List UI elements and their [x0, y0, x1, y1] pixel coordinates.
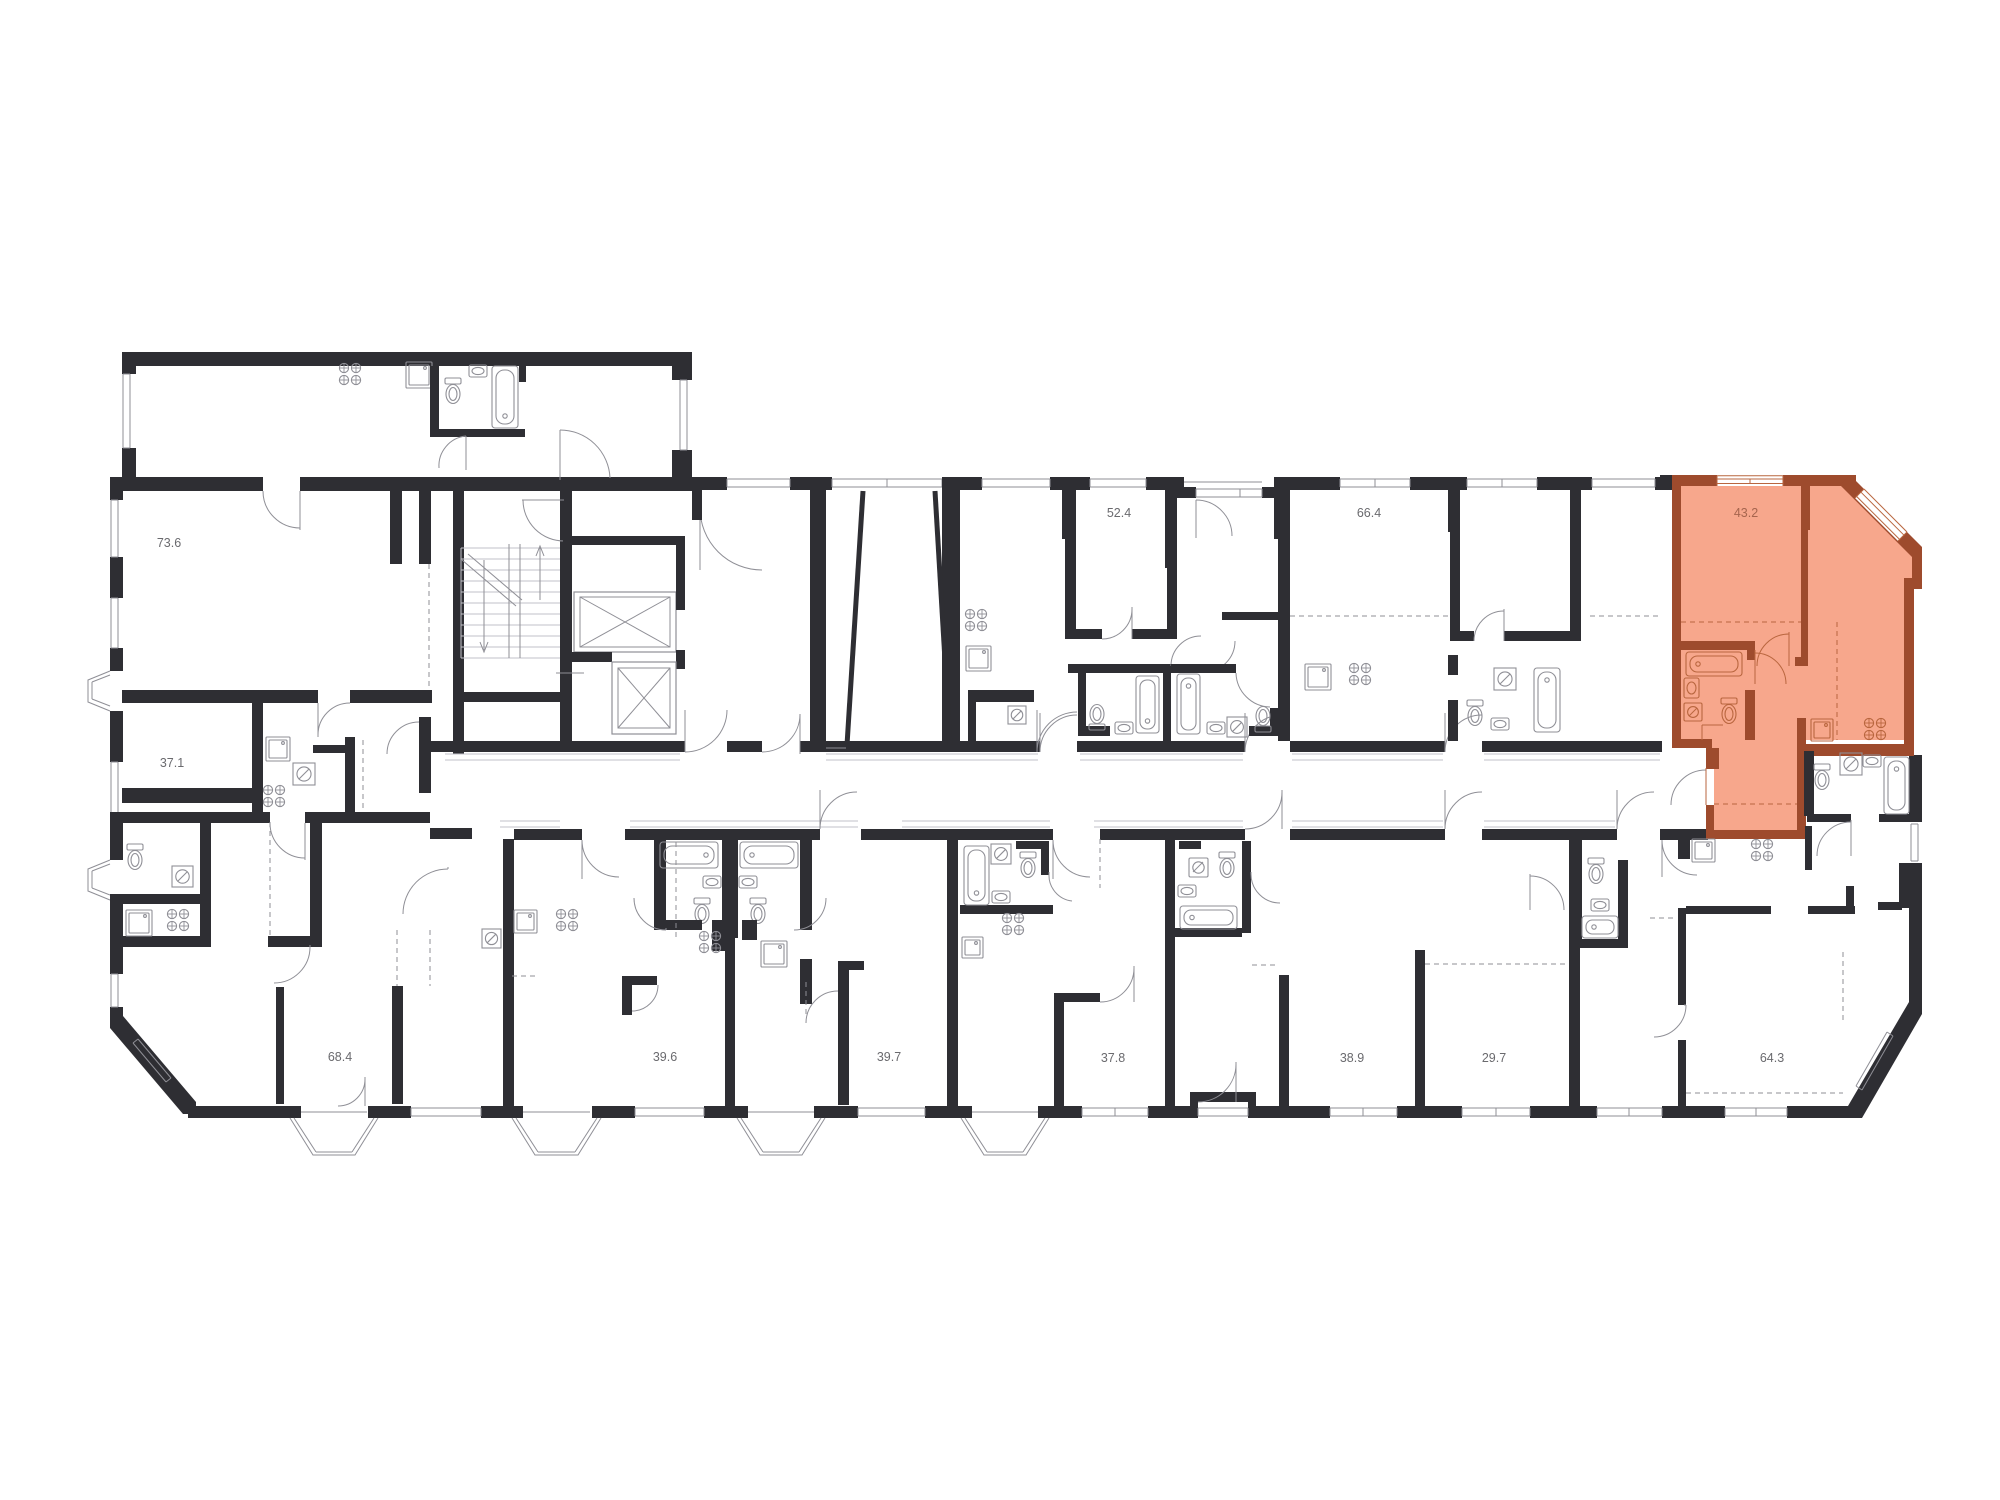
svg-text:38.9: 38.9 — [1340, 1051, 1364, 1065]
svg-text:66.4: 66.4 — [1357, 506, 1381, 520]
svg-text:52.4: 52.4 — [1107, 506, 1131, 520]
svg-text:39.7: 39.7 — [877, 1050, 901, 1064]
svg-text:29.7: 29.7 — [1482, 1051, 1506, 1065]
svg-text:73.6: 73.6 — [157, 536, 181, 550]
svg-text:37.1: 37.1 — [160, 756, 184, 770]
svg-text:68.4: 68.4 — [328, 1050, 352, 1064]
svg-text:39.6: 39.6 — [653, 1050, 677, 1064]
svg-text:43.2: 43.2 — [1734, 506, 1758, 520]
svg-text:37.8: 37.8 — [1101, 1051, 1125, 1065]
svg-text:64.3: 64.3 — [1760, 1051, 1784, 1065]
